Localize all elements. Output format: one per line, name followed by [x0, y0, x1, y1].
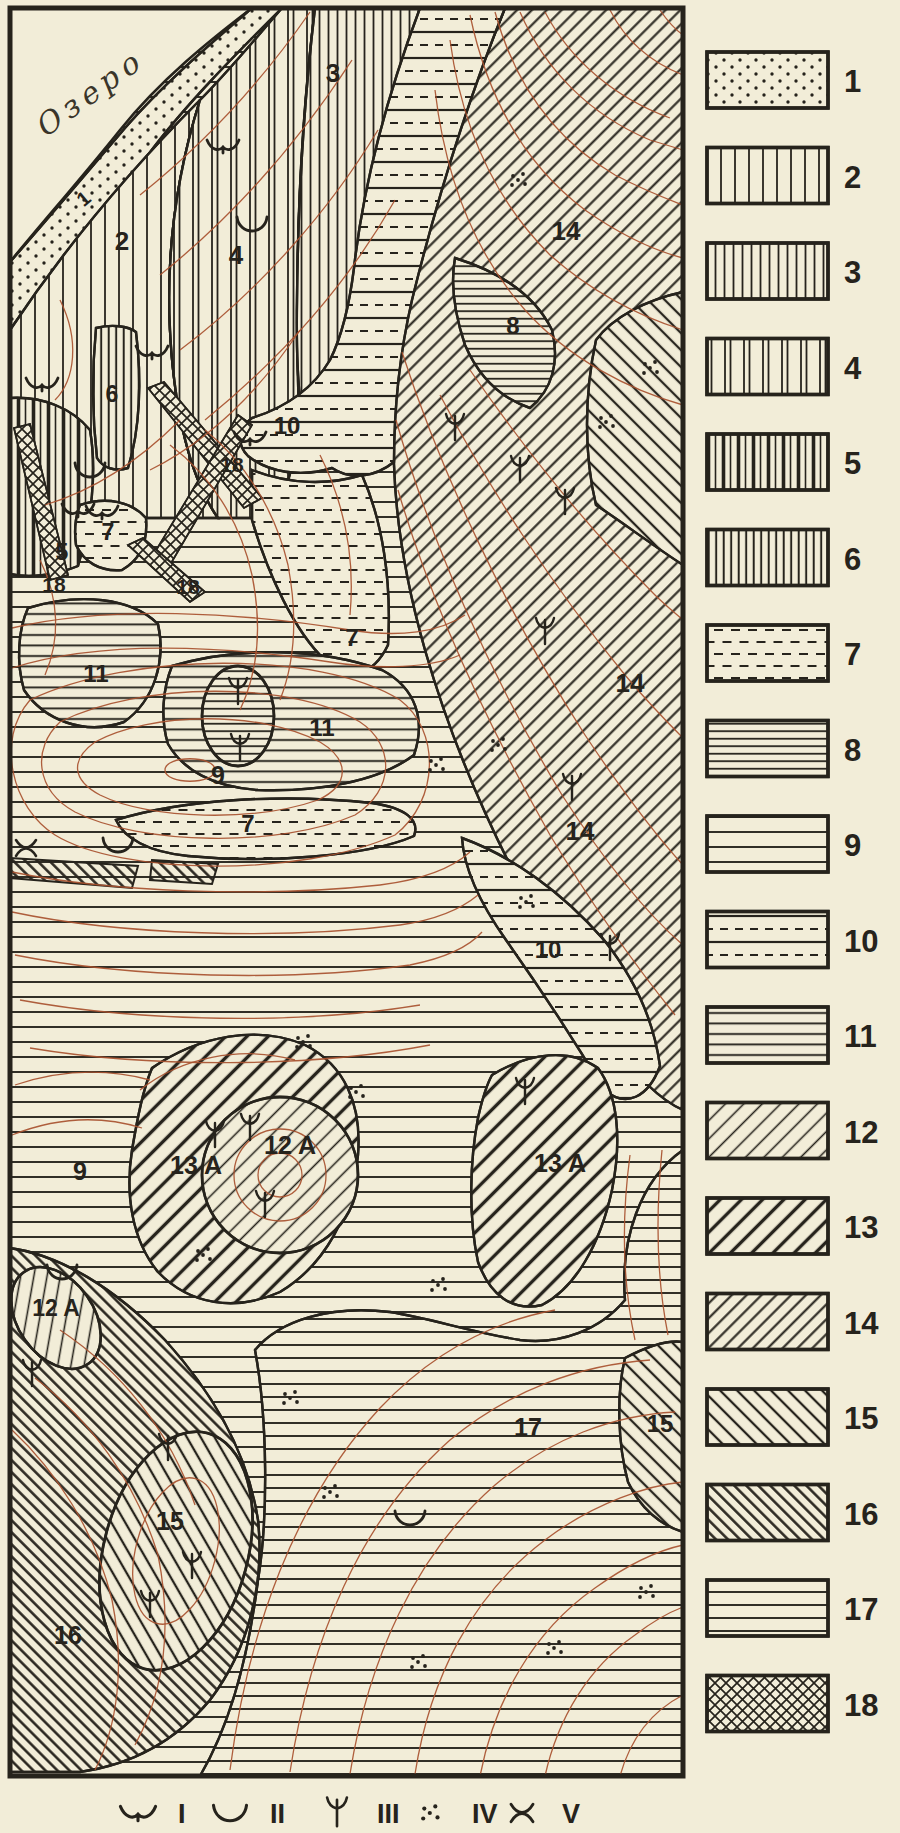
legend-number: 3	[844, 255, 861, 290]
map-region-label: 18	[42, 573, 66, 596]
legend-swatch-horizontal-lines-sparse	[707, 1580, 828, 1636]
map-region-label: 12 A	[264, 1131, 316, 1159]
symbol-key-numeral: IV	[472, 1799, 498, 1829]
legend-swatch-horizontal-dashes	[707, 625, 828, 681]
symbol-key-numeral: I	[178, 1799, 186, 1829]
legend-number: 2	[844, 160, 861, 195]
legend-swatch-horizontal-lines-wide	[707, 816, 828, 872]
legend-swatch-dots	[707, 52, 828, 108]
legend-panel: 123456789101112131415161718	[707, 52, 879, 1732]
map-region-label: 17	[514, 1413, 542, 1441]
region-12a-hill	[202, 1097, 358, 1253]
legend-number: 13	[844, 1210, 878, 1245]
map-region-label: 16	[54, 1621, 82, 1649]
map-region-label: 6	[106, 381, 119, 407]
map-region-label: 14	[616, 668, 645, 698]
legend-swatch-diagonal-medium	[707, 1294, 828, 1350]
legend-number: 15	[844, 1401, 878, 1436]
map-region-label: 18	[176, 575, 200, 598]
legend-swatch-vertical-lines-thick-thin	[707, 434, 828, 490]
legend-row-12: 12	[707, 1103, 878, 1159]
legend-swatch-crosshatch-diamond	[707, 1676, 828, 1732]
map-region-label: 10	[535, 936, 562, 963]
legend-swatch-vertical-lines-dense	[707, 530, 828, 586]
legend-swatch-horizontal-solid-and-dashed	[707, 912, 828, 968]
legend-row-7: 7	[707, 625, 861, 681]
map-region-label: 18	[220, 453, 244, 476]
map-region-label: 11	[83, 660, 108, 687]
trident-icon	[327, 1798, 347, 1827]
legend-row-2: 2	[707, 148, 861, 204]
legend-number: 9	[844, 828, 861, 863]
dot-cluster-icon	[421, 1804, 439, 1820]
legend-swatch-horizontal-lines-medium	[707, 1007, 828, 1063]
legend-swatch-back-diagonal-medium	[707, 1389, 828, 1445]
legend-swatch-horizontal-lines-dense	[707, 721, 828, 777]
legend-number: 4	[844, 351, 862, 386]
map-region-label: 9	[211, 761, 225, 789]
symbol-key-numeral: III	[377, 1799, 400, 1829]
legend-row-10: 10	[707, 912, 878, 968]
map-region-label: 12 A	[32, 1295, 80, 1321]
map-region-label: 13 A	[170, 1151, 222, 1179]
crescent-notched-icon	[120, 1806, 155, 1820]
legend-number: 17	[844, 1592, 878, 1627]
symbol-key-item-V: V	[511, 1799, 580, 1829]
map-region-label: 8	[506, 312, 519, 339]
symbol-key-item-I: I	[120, 1799, 185, 1829]
map-region-label: 5	[56, 539, 69, 565]
legend-swatch-vertical-lines-wide	[707, 148, 828, 204]
crescent-icon	[214, 1805, 247, 1820]
legend-swatch-vertical-lines-paired	[707, 339, 828, 395]
symbol-key: IIIIIIIVV	[120, 1798, 580, 1829]
map-region-label: 14	[552, 216, 581, 246]
legend-number: 5	[844, 446, 861, 481]
legend-row-14: 14	[707, 1294, 879, 1350]
symbol-key-numeral: V	[562, 1799, 580, 1829]
legend-number: 8	[844, 733, 861, 768]
legend-row-8: 8	[707, 721, 861, 777]
double-crescent-cross-icon	[511, 1804, 533, 1822]
legend-row-13: 13	[707, 1198, 878, 1254]
legend-row-5: 5	[707, 434, 861, 490]
legend-number: 18	[844, 1688, 878, 1723]
legend-number: 1	[844, 64, 861, 99]
map-region-label: 3	[326, 58, 340, 88]
legend-row-17: 17	[707, 1580, 878, 1636]
legend-number: 6	[844, 542, 861, 577]
legend-swatch-vertical-lines-medium	[707, 243, 828, 299]
map-region-label: 7	[102, 519, 115, 545]
map-region-label: 7	[345, 624, 358, 651]
legend-row-11: 11	[707, 1007, 877, 1063]
legend-swatch-diagonal-thick	[707, 1198, 828, 1254]
map-region-label: 4	[229, 240, 244, 270]
symbol-key-item-II: II	[214, 1799, 286, 1829]
map-region-label: 15	[156, 1507, 184, 1535]
soil-map-figure: Озеро1234148106185718187141111149710912 …	[0, 0, 900, 1833]
symbol-key-item-III: III	[327, 1798, 399, 1829]
legend-row-16: 16	[707, 1485, 878, 1541]
legend-row-9: 9	[707, 816, 861, 872]
legend-number: 12	[844, 1115, 878, 1150]
legend-number: 10	[844, 924, 878, 959]
map-region-label: 14	[566, 816, 595, 846]
legend-number: 7	[844, 637, 861, 672]
map-panel: Озеро1234148106185718187141111149710912 …	[0, 8, 683, 1776]
map-region-label: 9	[73, 1157, 87, 1185]
map-region-label: 13 A	[534, 1149, 586, 1177]
map-region-label: 11	[309, 714, 334, 741]
map-region-label: 10	[274, 412, 301, 439]
symbol-key-item-IV: IV	[421, 1799, 497, 1829]
legend-number: 11	[844, 1019, 877, 1054]
legend-row-1: 1	[707, 52, 861, 108]
map-region-label: 2	[115, 226, 129, 256]
legend-row-15: 15	[707, 1389, 878, 1445]
legend-row-18: 18	[707, 1676, 878, 1732]
legend-number: 16	[844, 1497, 878, 1532]
legend-swatch-diagonal-thin	[707, 1103, 828, 1159]
legend-swatch-back-diagonal-dense	[707, 1485, 828, 1541]
legend-number: 14	[844, 1306, 879, 1341]
symbol-key-numeral: II	[270, 1799, 285, 1829]
legend-row-4: 4	[707, 339, 862, 395]
map-region-label: 15	[647, 1410, 674, 1437]
legend-row-6: 6	[707, 530, 861, 586]
legend-row-3: 3	[707, 243, 861, 299]
map-region-label: 7	[241, 810, 254, 837]
scanned-soil-map-page: { "colors": { "paper": "#f2edd8", "ink":…	[0, 0, 900, 1833]
